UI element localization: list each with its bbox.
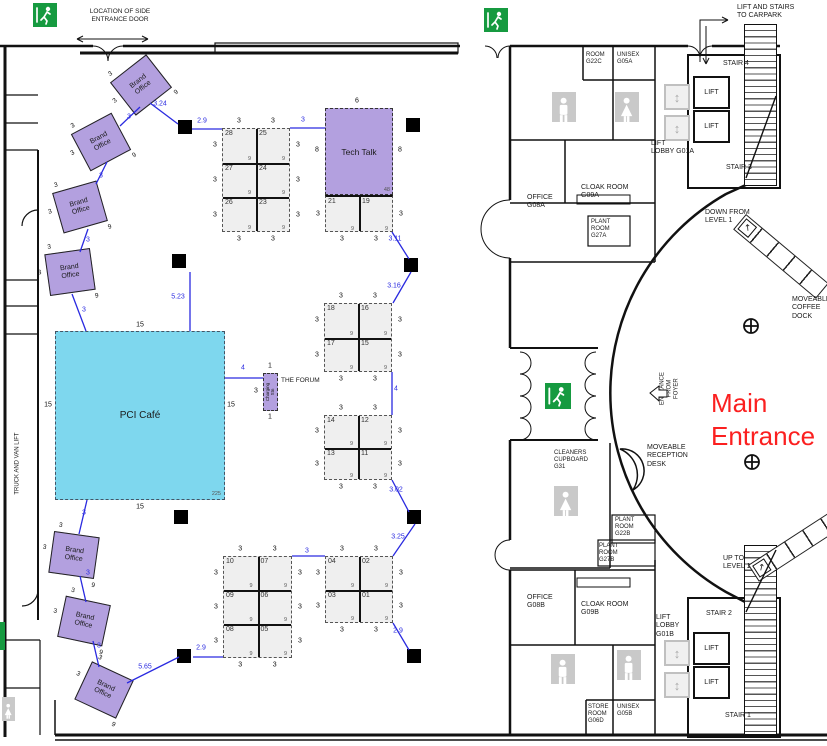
dimension-label: 3 [86,237,90,244]
office-dim: 3 [59,522,64,529]
booth-dim: 3 [398,317,402,324]
room-g22c-label: ROOM G22C [586,52,605,66]
booth-area: 9 [284,651,287,657]
cafe-dim-bottom: 15 [136,504,144,511]
booth-dim: 3 [213,211,217,218]
booth-area: 9 [384,331,387,337]
booth-area: 9 [384,365,387,371]
booth-dim: 3 [399,569,403,576]
dimension-label: 3 [97,643,101,650]
tech-talk-area: 48 [384,187,390,193]
booth-07: 07 [261,558,269,565]
escalator-down-from-level1: ↖ [733,214,827,299]
booth-17: 17 [327,340,335,347]
booth-area: 9 [248,156,251,162]
booth-14: 14 [327,417,335,424]
unisex-g05a-label: UNISEX G05A [617,52,639,66]
dimension-label: 3 [305,548,309,555]
coffee-dock-label: MOVEABLE COFFEE DOCK [792,296,827,321]
brand-office-box: Brand Office [57,596,111,647]
booth-dim: 3 [298,570,302,577]
reception-desk-shape [620,449,644,490]
lift-cabin-icon: ↕ [664,672,690,698]
brand-office-box: Brand Office [71,113,131,172]
booth-area: 9 [350,365,353,371]
carpark-route-arrow [700,17,728,64]
forum-charging-unit: Charging Stn [263,373,278,411]
dimension-label: 3 [82,307,86,314]
structural-column [407,510,421,524]
booth-dim: 3 [296,142,300,149]
booth-area: 9 [282,156,285,162]
booth-dim: 3 [399,603,403,610]
booth-09: 09 [226,592,234,599]
brand-office-box: Brand Office [44,248,95,296]
booth-08: 08 [226,626,234,633]
cafe-dim-left: 15 [44,402,52,409]
booth-dim: 3 [373,376,377,383]
booth-area: 9 [350,441,353,447]
stair4-label: STAIR 4 [723,60,749,68]
booth-area: 9 [284,583,287,589]
booth-block-3: 149129139119 [324,415,392,480]
tech-talk-zone: Tech Talk 48 [325,108,393,195]
booth-dim: 3 [214,638,218,645]
office-dim: 3 [70,122,76,130]
booth-16: 16 [361,305,369,312]
booth-dim: 3 [373,405,377,412]
brand-office-box: Brand Office [74,661,133,719]
booth-dim: 3 [339,376,343,383]
office-dim: 3 [111,97,118,105]
dimension-label: 4 [241,365,245,372]
booth-02: 02 [362,558,370,565]
lift-cabin-icon: ↕ [664,115,690,141]
office-dim: 3 [70,587,75,595]
booth-dim: 3 [316,603,320,610]
office-dim: 3 [69,149,75,157]
dimension-label: 5.23 [171,294,185,301]
plant-g27a-label: PLANT ROOM G27A [591,219,610,240]
side-entrance-note: LOCATION OF SIDE ENTRANCE DOOR [70,8,170,23]
booth-dim: 3 [298,638,302,645]
booth-dim: 3 [298,604,302,611]
tech-dim-top: 6 [355,98,359,105]
dimension-label: 3 [301,117,305,124]
booth-dim: 3 [273,546,277,553]
booth-dim: 3 [398,351,402,358]
structural-column [407,649,421,663]
booth-dim: 3 [213,177,217,184]
booth-divider [359,197,361,231]
dimension-label: 3.25 [391,534,405,541]
booth-area: 9 [250,651,253,657]
dimension-label: 3.11 [388,236,401,243]
floor-plan: PCI Café 225 Tech Talk 48 Charging Stn 1… [0,0,827,746]
booth-dim: 3 [339,484,343,491]
brand-office-7: Brand Office339 [74,661,133,719]
booth-dim: 3 [316,210,320,217]
forum-dim-top: 1 [268,363,272,370]
structural-column [178,120,192,134]
the-forum-label: THE FORUM [281,377,320,385]
dimension-label: 2.9 [196,645,206,652]
forum-dim-left: 3 [254,388,258,395]
structural-column [406,118,420,132]
booth-area: 9 [385,226,388,232]
booth-dim: 3 [315,428,319,435]
booth-01: 01 [362,592,370,599]
booth-dim: 3 [296,177,300,184]
office-dim: 3 [37,269,42,276]
brand-office-2: Brand Office339 [71,113,131,172]
office-dim: 3 [53,607,58,615]
dimension-label: 2.9 [393,628,403,635]
stair3-label: STAIR 3 [726,164,752,172]
booth-18: 18 [327,305,335,312]
cloak-g09b-label: CLOAK ROOM G09B [581,601,628,618]
booth-dim: 3 [374,236,378,243]
booth-dim: 3 [340,236,344,243]
booth-area: 9 [384,473,387,479]
office-area: 9 [107,223,112,231]
forum-dim-bottom: 1 [268,414,272,421]
booth-13: 13 [327,450,335,457]
booth-26: 26 [225,199,233,206]
booth-dim: 3 [296,211,300,218]
side-entrance-extent-arrow [77,36,148,42]
dimension-label: 3.16 [387,283,401,290]
office-dim: 3 [42,544,47,551]
booth-block-5: 049029039019 [325,556,393,623]
stair-3-4-flight [744,24,777,186]
reception-label: MOVEABLE RECEPTION DESK [647,444,688,469]
tech-talk-label: Tech Talk [341,147,376,157]
female-toilet-icon [2,697,15,721]
dimension-label: 3 [86,570,90,577]
booth-area: 9 [350,331,353,337]
booth-dim: 3 [373,484,377,491]
tech-dim-left: 8 [315,147,319,154]
booth-divider [256,129,258,231]
booth-area: 9 [350,473,353,479]
office-dim: 3 [53,181,58,189]
truck-van-lift-label: TRUCK AND VAN LIFT [14,428,21,500]
booth-dim: 3 [271,236,275,243]
office-area: 9 [95,292,100,299]
booth-area: 9 [282,190,285,196]
pci-cafe-zone: PCI Café 225 [55,331,225,500]
exit-running-man-icon [545,383,571,409]
cleaners-g31-label: CLEANERS CUPBOARD G31 [554,450,588,471]
booth-dim: 3 [214,570,218,577]
office-dim: 3 [47,208,52,216]
lift-cabin-icon: ↕ [664,84,690,110]
male-toilet-icon [552,92,576,122]
booth-dim: 3 [213,142,217,149]
booth-dim: 3 [273,662,277,669]
booth-21: 21 [328,198,336,205]
booth-area: 9 [250,583,253,589]
dimension-label: 3 [127,114,131,121]
booth-block-4: 109079099069089059 [223,556,292,658]
booth-25: 25 [259,130,267,137]
structural-column [172,254,186,268]
main-entrance-label: Main Entrance [711,387,815,452]
booth-area: 9 [248,190,251,196]
tech-dim-right: 8 [398,147,402,154]
brand-office-3: Brand Office339 [52,180,108,233]
booth-10: 10 [226,558,234,565]
booth-divider [258,557,260,657]
lift-1: LIFT [693,76,730,109]
booth-dim: 3 [237,236,241,243]
booth-27: 27 [225,165,233,172]
pci-cafe-label: PCI Café [120,410,161,421]
lift-lobby-g01b-label: LIFT LOBBY G01B [656,614,679,639]
lift-cabin-icon: ↕ [664,640,690,666]
escalator-direction-icon: ↗ [752,558,771,577]
store-g06d-label: STORE ROOM G06D [588,704,609,725]
booth-dim: 3 [373,293,377,300]
dimension-label: 3 [82,510,86,517]
booth-dim: 3 [271,118,275,125]
cloak-g09a-label: CLOAK ROOM G09A [581,184,628,201]
cafe-dim-right: 15 [227,402,235,409]
lift-4: LIFT [693,666,730,699]
booth-19: 19 [362,198,370,205]
dimension-label: 3.02 [389,487,403,494]
booth-28: 28 [225,130,233,137]
office-area: 9 [131,151,137,159]
exit-running-man-icon [33,3,57,27]
booth-dim: 3 [339,293,343,300]
exit-running-man-icon [484,8,508,32]
brand-office-box: Brand Office [48,531,99,579]
booth-dim: 3 [238,662,242,669]
female-toilet-icon [615,92,639,122]
booth-dim: 3 [238,546,242,553]
down-from-level1-label: DOWN FROM LEVEL 1 [705,209,750,226]
lift-lobby-g01a-label: LIFT LOBBY G01A [651,140,694,157]
booth-area: 9 [351,616,354,622]
lift-2: LIFT [693,110,730,143]
booth-area: 9 [385,583,388,589]
office-g08b-label: OFFICE G08B [527,594,553,611]
dimension-label: 3.24 [153,101,167,108]
office-dim: 3 [47,243,52,250]
lift-1-label: LIFT [704,89,718,96]
booth-15: 15 [361,340,369,347]
booth-dim: 3 [214,604,218,611]
booth-dim: 3 [398,460,402,467]
lift-2-label: LIFT [704,123,718,130]
booth-dim: 3 [340,627,344,634]
booth-dim: 3 [315,460,319,467]
booth-area: 9 [282,225,285,231]
booth-block-0: 289259279249269239 [222,128,290,232]
booth-dim: 3 [374,546,378,553]
booth-dim: 3 [399,210,403,217]
office-area: 9 [110,721,116,729]
carpark-label: LIFT AND STAIRS TO CARPARK [737,4,794,21]
office-g08a-label: OFFICE G08A [527,194,553,211]
entrance-from-foyer-label: ENTRANCE FROM FOYER [659,359,680,419]
booth-03: 03 [328,592,336,599]
dimension-label: 3 [99,173,103,180]
brand-office-box: Brand Office [52,180,108,233]
brand-office-6: Brand Office339 [57,596,111,647]
forum-unit-label: Charging Stn [266,383,276,401]
booth-area: 9 [385,616,388,622]
unisex-g05b-label: UNISEX G05B [617,704,639,718]
booth-23: 23 [259,199,267,206]
female-toilet-icon [554,486,578,516]
office-dim: 3 [75,670,81,678]
lift-3: LIFT [693,632,730,665]
brand-office-4: Brand Office339 [44,248,95,296]
office-dim: 3 [107,70,114,78]
office-area: 9 [173,89,180,97]
stair2-label: STAIR 2 [706,610,732,618]
booth-block-1: 219199 [325,195,393,232]
cafe-dim-top: 15 [136,322,144,329]
booth-block-2: 189169179159 [324,303,392,372]
booth-divider [224,624,291,626]
male-toilet-icon [617,650,641,680]
booth-area: 9 [250,617,253,623]
booth-area: 9 [248,225,251,231]
booth-area: 9 [351,226,354,232]
structural-column [177,649,191,663]
booth-dim: 3 [340,546,344,553]
booth-dim: 3 [315,317,319,324]
dimension-label: 4 [394,386,398,393]
brand-office-5: Brand Office339 [48,531,99,579]
male-toilet-icon [551,654,575,684]
booth-divider [224,590,291,592]
plant-g27b-label: PLANT ROOM G27B [599,543,618,564]
exit-door-edge [0,622,5,650]
stair1-label: STAIR 1 [725,712,751,720]
booth-dim: 3 [374,627,378,634]
booth-dim: 3 [315,351,319,358]
booth-dim: 3 [316,569,320,576]
office-area: 9 [91,582,96,589]
plant-g22b-label: PLANT ROOM G22B [615,517,634,538]
booth-dim: 3 [339,405,343,412]
lift-3-label: LIFT [704,645,718,652]
booth-24: 24 [259,165,267,172]
booth-04: 04 [328,558,336,565]
booth-dim: 3 [398,428,402,435]
booth-area: 9 [351,583,354,589]
dimension-label: 2.9 [197,118,207,125]
structural-column [174,510,188,524]
up-to-level1-label: UP TO LEVEL 1 [723,555,750,572]
pci-cafe-area: 225 [212,491,221,497]
booth-12: 12 [361,417,369,424]
structural-column [404,258,418,272]
dimension-label: 5.65 [138,664,152,671]
booth-05: 05 [261,626,269,633]
booth-11: 11 [361,450,368,457]
booth-area: 9 [384,441,387,447]
booth-06: 06 [261,592,269,599]
lift-4-label: LIFT [704,679,718,686]
booth-area: 9 [284,617,287,623]
booth-dim: 3 [237,118,241,125]
